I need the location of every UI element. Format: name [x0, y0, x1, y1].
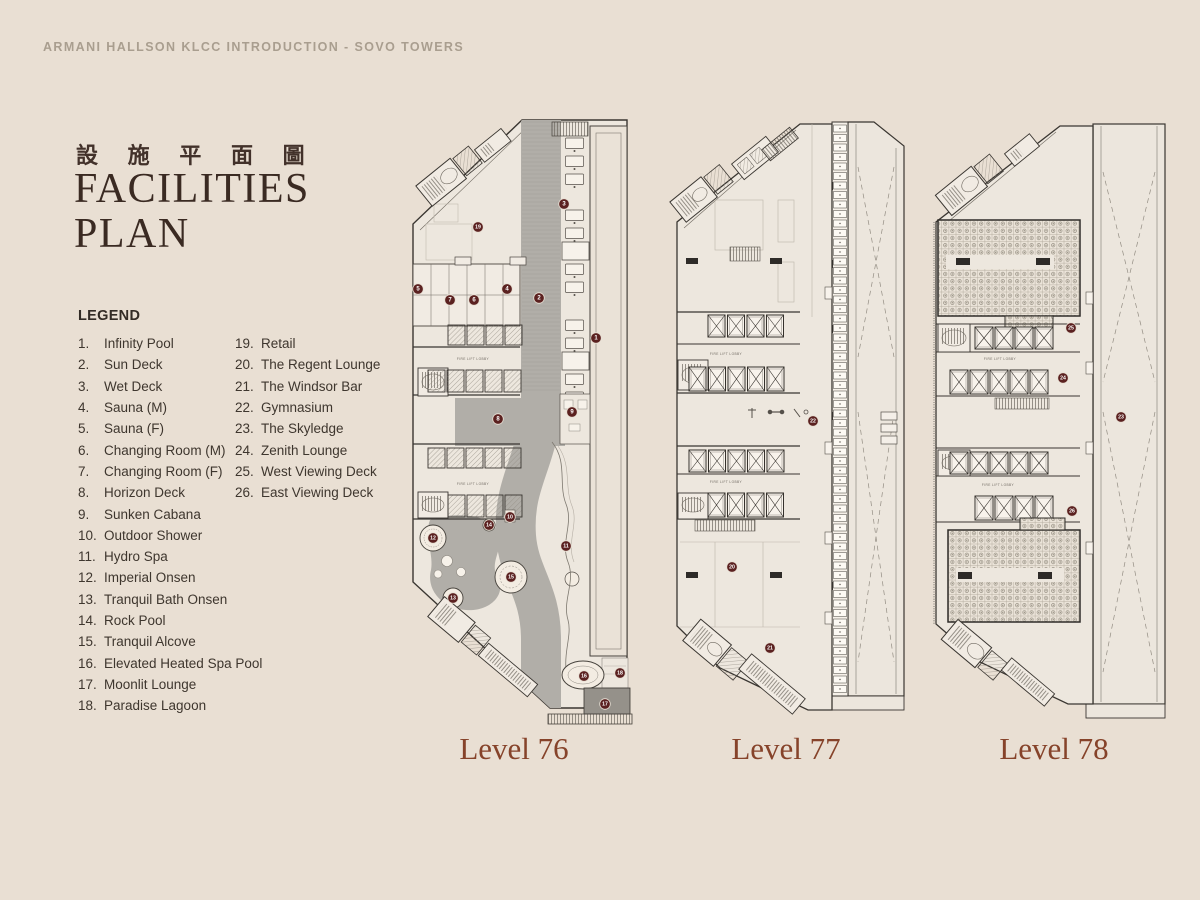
legend-item-number: 26.	[235, 485, 261, 500]
legend-item-label: Tranquil Bath Onsen	[104, 592, 227, 607]
legend-item-label: Wet Deck	[104, 379, 162, 394]
legend-item-label: Paradise Lagoon	[104, 698, 206, 713]
legend-item-label: East Viewing Deck	[261, 485, 373, 500]
legend-item-label: Retail	[261, 336, 296, 351]
legend-item-number: 6.	[78, 443, 104, 458]
legend-item: 15.Tranquil Alcove	[78, 631, 262, 652]
facility-marker-number: 12	[430, 535, 436, 541]
facility-marker-number: 23	[1118, 414, 1124, 420]
horizon-deck-area	[455, 398, 565, 446]
legend-heading: LEGEND	[78, 308, 140, 324]
facility-marker-number: 22	[810, 418, 816, 424]
facility-marker-number: 17	[602, 701, 608, 707]
facility-marker-number: 15	[508, 574, 514, 580]
legend-item-number: 14.	[78, 613, 104, 628]
bottom-stair-bar	[548, 714, 632, 724]
legend-item-number: 24.	[235, 443, 261, 458]
legend-item: 13.Tranquil Bath Onsen	[78, 589, 262, 610]
fire-lift-lobby-label: FIRE LIFT LOBBY	[984, 357, 1017, 361]
legend-item-number: 9.	[78, 507, 104, 522]
facility-marker-number: 20	[729, 564, 735, 570]
facility-marker-number: 25	[1068, 325, 1074, 331]
level-label-77: Level 77	[676, 731, 896, 767]
legend-item-number: 10.	[78, 528, 104, 543]
central-stair	[730, 247, 760, 261]
legend-item-label: Rock Pool	[104, 613, 166, 628]
legend-item: 10.Outdoor Shower	[78, 525, 262, 546]
legend-item: 18.Paradise Lagoon	[78, 695, 262, 716]
legend-item-label: West Viewing Deck	[261, 464, 377, 479]
legend-item-label: Horizon Deck	[104, 485, 185, 500]
legend-item-label: Infinity Pool	[104, 336, 174, 351]
legend-item: 26.East Viewing Deck	[235, 482, 380, 503]
legend-item-number: 3.	[78, 379, 104, 394]
legend-item: 16.Elevated Heated Spa Pool	[78, 652, 262, 673]
legend-item: 11.Hydro Spa	[78, 546, 262, 567]
legend-item: 9.Sunken Cabana	[78, 503, 262, 524]
facility-marker-number: 16	[581, 673, 587, 679]
legend-item: 17.Moonlit Lounge	[78, 674, 262, 695]
page-title-line1: FACILITIES	[74, 167, 310, 212]
legend-item-number: 15.	[78, 634, 104, 649]
legend-item: 22.Gymnasium	[235, 397, 380, 418]
legend-item: 14.Rock Pool	[78, 610, 262, 631]
legend-item-number: 23.	[235, 421, 261, 436]
facility-marker-number: 10	[507, 514, 513, 520]
legend-item: 25.West Viewing Deck	[235, 461, 380, 482]
viewing-deck-room-north	[938, 220, 1080, 328]
legend-item: 12.Imperial Onsen	[78, 567, 262, 588]
legend-item-number: 22.	[235, 400, 261, 415]
fire-lift-lobby-label: FIRE LIFT LOBBY	[457, 482, 490, 486]
facility-marker-number: 13	[450, 595, 456, 601]
legend-item-label: Sauna (M)	[104, 400, 167, 415]
legend-item-number: 12.	[78, 570, 104, 585]
viewing-deck-room-south	[948, 518, 1080, 622]
legend-item-label: The Windsor Bar	[261, 379, 362, 394]
legend-item-label: Hydro Spa	[104, 549, 168, 564]
legend-item: 24.Zenith Lounge	[235, 439, 380, 460]
presentation-header: ARMANI HALLSON KLCC INTRODUCTION - SOVO …	[43, 40, 464, 54]
facility-marker-number: 26	[1069, 508, 1075, 514]
legend-item-number: 13.	[78, 592, 104, 607]
fire-lift-lobby-label: FIRE LIFT LOBBY	[710, 480, 743, 484]
facility-marker-number: 11	[563, 543, 569, 549]
fire-lift-lobby-label: FIRE LIFT LOBBY	[457, 357, 490, 361]
legend-item-label: Sun Deck	[104, 357, 163, 372]
sunken-cabana-area	[560, 394, 590, 444]
floor-plan-level-78: FIRE LIFT LOBBY FIRE LIFT LOBBY 25242326	[920, 112, 1170, 732]
legend-item-number: 16.	[78, 656, 104, 671]
level-label-76: Level 76	[404, 731, 624, 767]
legend-item-label: The Skyledge	[261, 421, 344, 436]
legend-item-label: Changing Room (M)	[104, 443, 226, 458]
legend-item: 21.The Windsor Bar	[235, 376, 380, 397]
legend-item-label: Elevated Heated Spa Pool	[104, 656, 262, 671]
pool-stair	[552, 122, 588, 136]
legend-item-label: Changing Room (F)	[104, 464, 223, 479]
legend-item-label: Sunken Cabana	[104, 507, 201, 522]
legend-item-label: Outdoor Shower	[104, 528, 202, 543]
floor-plan-level-76: FIRE LIFT LOBBY FIRE LIFT LOBBY	[400, 112, 640, 732]
legend-item-label: Zenith Lounge	[261, 443, 347, 458]
legend-item-label: Gymnasium	[261, 400, 333, 415]
legend-item-label: Tranquil Alcove	[104, 634, 196, 649]
legend-item-number: 1.	[78, 336, 104, 351]
daybed	[562, 242, 589, 260]
legend-item-number: 20.	[235, 357, 261, 372]
infinity-pool	[590, 126, 627, 656]
legend-item: 19.Retail	[235, 333, 380, 354]
fire-lift-lobby-label: FIRE LIFT LOBBY	[710, 352, 743, 356]
fire-lift-lobby-label: FIRE LIFT LOBBY	[982, 483, 1015, 487]
legend-item-number: 21.	[235, 379, 261, 394]
legend-item-number: 5.	[78, 421, 104, 436]
facility-marker-number: 19	[475, 224, 481, 230]
daybed	[562, 352, 589, 370]
page-title-line2: PLAN	[74, 212, 310, 257]
facility-marker-number: 24	[1060, 375, 1066, 381]
legend-item-number: 8.	[78, 485, 104, 500]
legend-item-label: Sauna (F)	[104, 421, 164, 436]
legend-item-number: 18.	[78, 698, 104, 713]
facility-marker-number: 21	[767, 645, 773, 651]
legend-item-label: The Regent Lounge	[261, 357, 380, 372]
level-label-78: Level 78	[944, 731, 1164, 767]
legend-column-2: 19.Retail20.The Regent Lounge21.The Wind…	[235, 333, 380, 503]
legend-item-number: 25.	[235, 464, 261, 479]
floor-plan-level-77: FIRE LIFT LOBBY FIRE LIFT LOBBY 222021	[660, 112, 910, 732]
legend-item-number: 19.	[235, 336, 261, 351]
legend-item-number: 4.	[78, 400, 104, 415]
legend-item: 23.The Skyledge	[235, 418, 380, 439]
legend-item-number: 17.	[78, 677, 104, 692]
legend-item-label: Imperial Onsen	[104, 570, 196, 585]
facility-marker-number: 18	[617, 670, 623, 676]
facility-marker-number: 14	[486, 522, 492, 528]
page-title: FACILITIES PLAN	[74, 167, 310, 257]
legend-item-number: 7.	[78, 464, 104, 479]
legend-item-number: 2.	[78, 357, 104, 372]
legend-item: 20.The Regent Lounge	[235, 354, 380, 375]
legend-item-number: 11.	[78, 549, 104, 564]
legend-item-label: Moonlit Lounge	[104, 677, 196, 692]
